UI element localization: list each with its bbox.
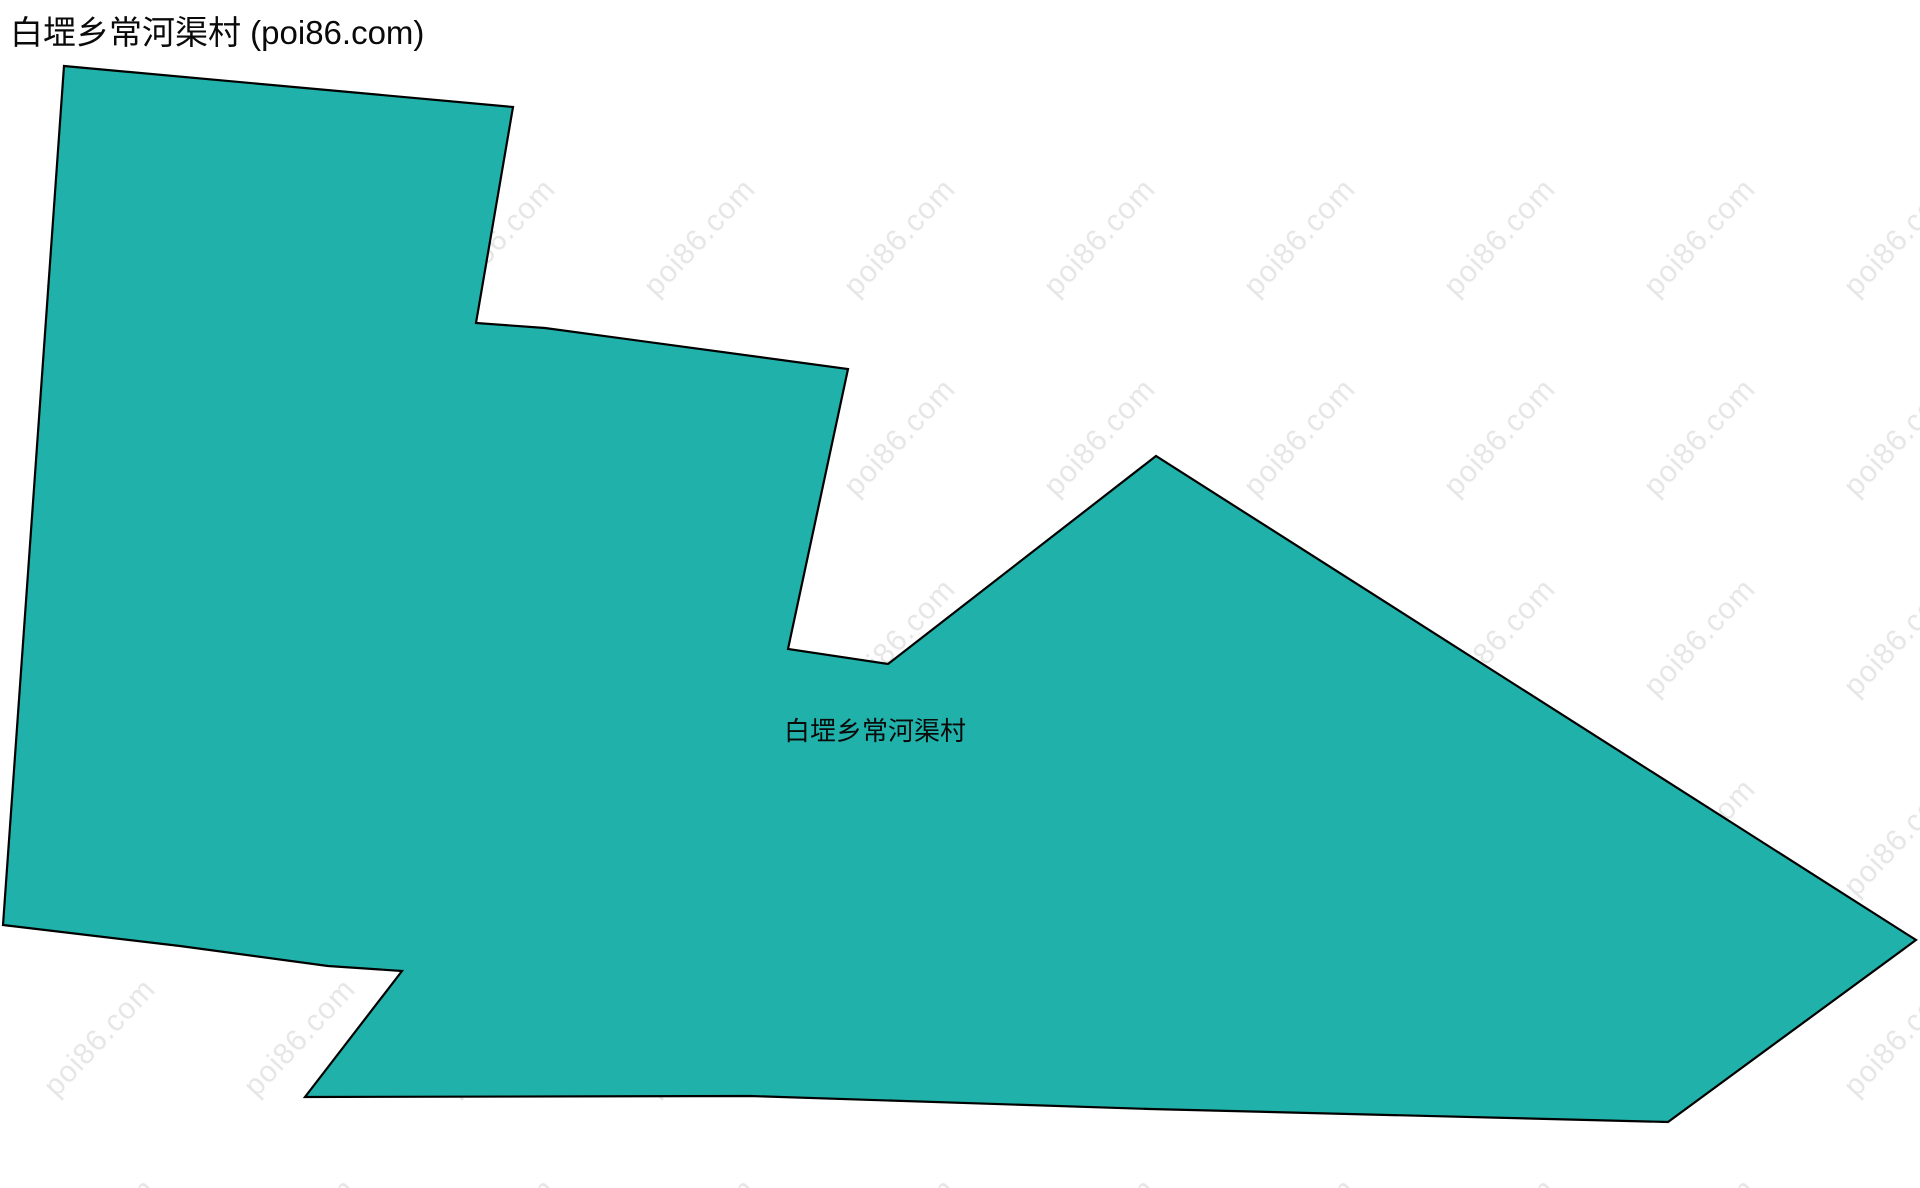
map-canvas: poi86.compoi86.compoi86.compoi86.compoi8… [0,0,1920,1188]
village-boundary-label: 白堽乡常河渠村 [784,716,966,746]
page-title: 白堽乡常河渠村 (poi86.com) [10,6,424,54]
village-boundary-polygon [3,66,1916,1122]
boundary-map: 白堽乡常河渠村 [0,0,1920,1188]
